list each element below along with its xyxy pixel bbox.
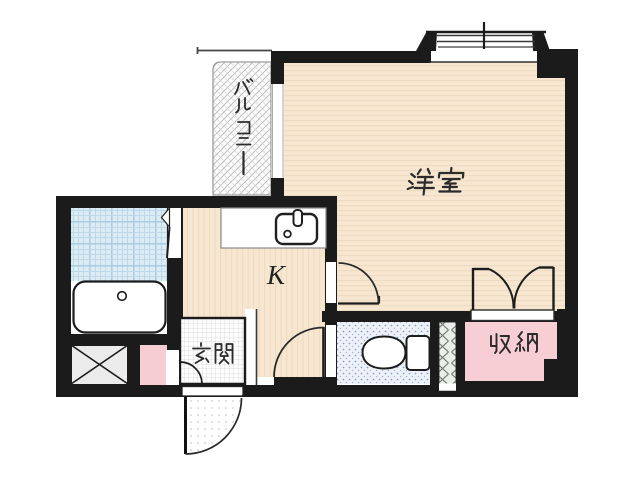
svg-text:K: K <box>266 260 287 290</box>
